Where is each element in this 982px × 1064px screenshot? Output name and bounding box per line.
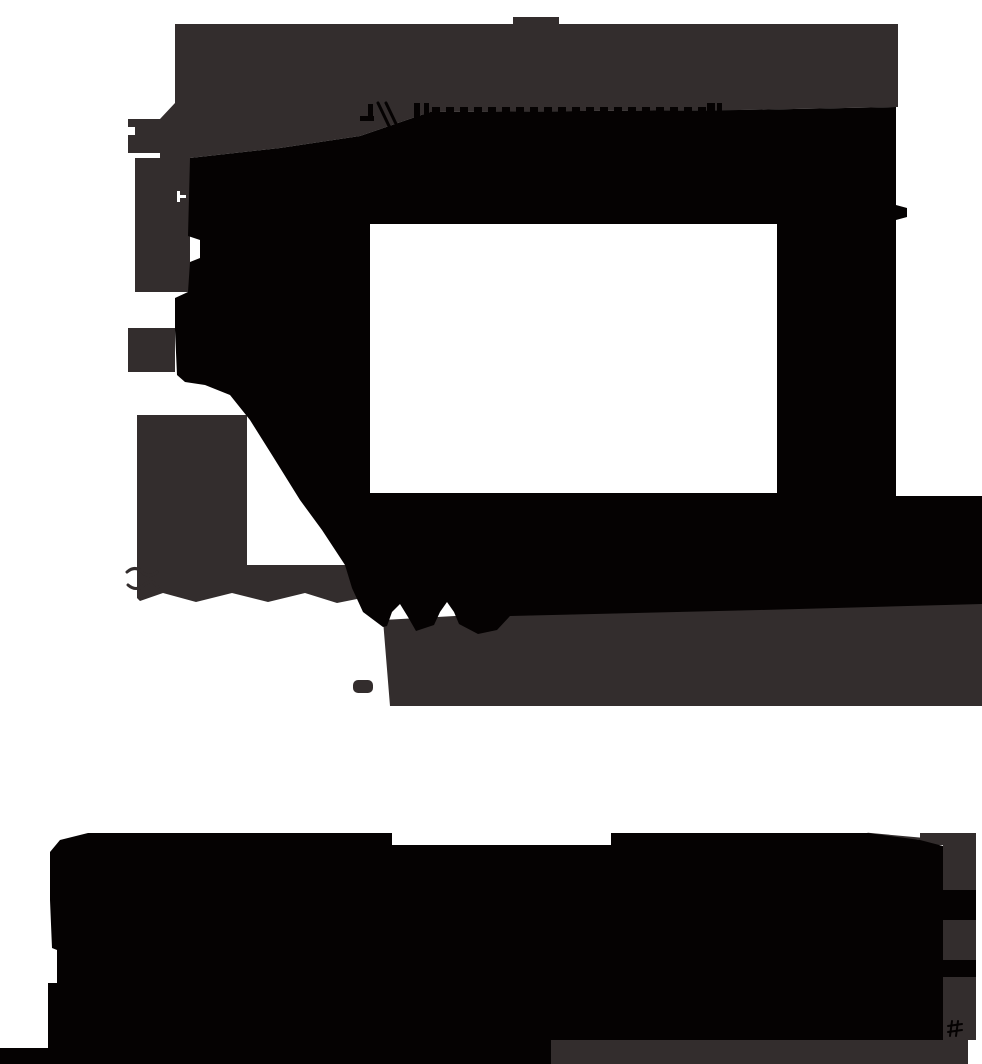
- cloud-left-tab-upper: [128, 119, 175, 127]
- comb-dash-row-dash: [642, 107, 650, 113]
- cloud-left-tab-third: [128, 328, 175, 372]
- comb-dash-row-dash: [586, 107, 594, 113]
- comb-dash-row-dash: [614, 107, 622, 113]
- gray-dash-below-band: [353, 680, 373, 693]
- comb-dash-row-dash: [544, 107, 552, 113]
- comb-dash-row-dash: [460, 107, 468, 113]
- comb-dash-row-dash: [446, 107, 454, 113]
- cloud-left-tab-mid: [135, 127, 160, 135]
- comb-dash-row-dash: [474, 107, 482, 113]
- comb-dash-row-dash: [572, 107, 580, 113]
- comb-dash-row-dash: [670, 107, 678, 113]
- mass-right-black-2: [943, 960, 976, 977]
- cloud-left-column: [135, 158, 190, 292]
- comb-dash-row-dash: [684, 107, 692, 113]
- white-speck-glyph-stem: [177, 191, 180, 202]
- comb-dash-row-dash: [502, 107, 510, 113]
- comb-dash-row-dash: [558, 107, 566, 113]
- cloud-left-tab-lower: [128, 135, 175, 153]
- comb-bar-right-a: [707, 103, 715, 129]
- comb-bar-left-a: [414, 103, 420, 129]
- comb-dash-row-dash: [530, 107, 538, 113]
- comb-dash-row-dash: [488, 107, 496, 113]
- comb-bar-right-b: [717, 103, 722, 129]
- comb-dash-row-dash: [698, 107, 706, 113]
- top-nub: [513, 17, 559, 24]
- binarized-figure-root: [0, 0, 982, 1064]
- figure-canvas: [0, 0, 982, 1064]
- mass-right-gray-1: [943, 845, 976, 890]
- mass-right-gray-2: [943, 920, 976, 960]
- comb-dash-row-dash: [516, 107, 524, 113]
- comb-bar-left-b: [424, 103, 429, 129]
- comb-glyph-stem: [368, 104, 373, 121]
- mass-bottom-right-gray: [551, 1040, 968, 1064]
- comb-dash-row-dash: [600, 107, 608, 113]
- white-rectangle-hole: [370, 224, 777, 493]
- comb-dash-row-dash: [656, 107, 664, 113]
- bottom-black-mass: [0, 833, 943, 1064]
- mass-right-black-1: [943, 890, 976, 920]
- comb-dash-row-dash: [432, 107, 440, 113]
- white-speck-glyph-arm: [180, 195, 186, 198]
- comb-dash-row-dash: [628, 107, 636, 113]
